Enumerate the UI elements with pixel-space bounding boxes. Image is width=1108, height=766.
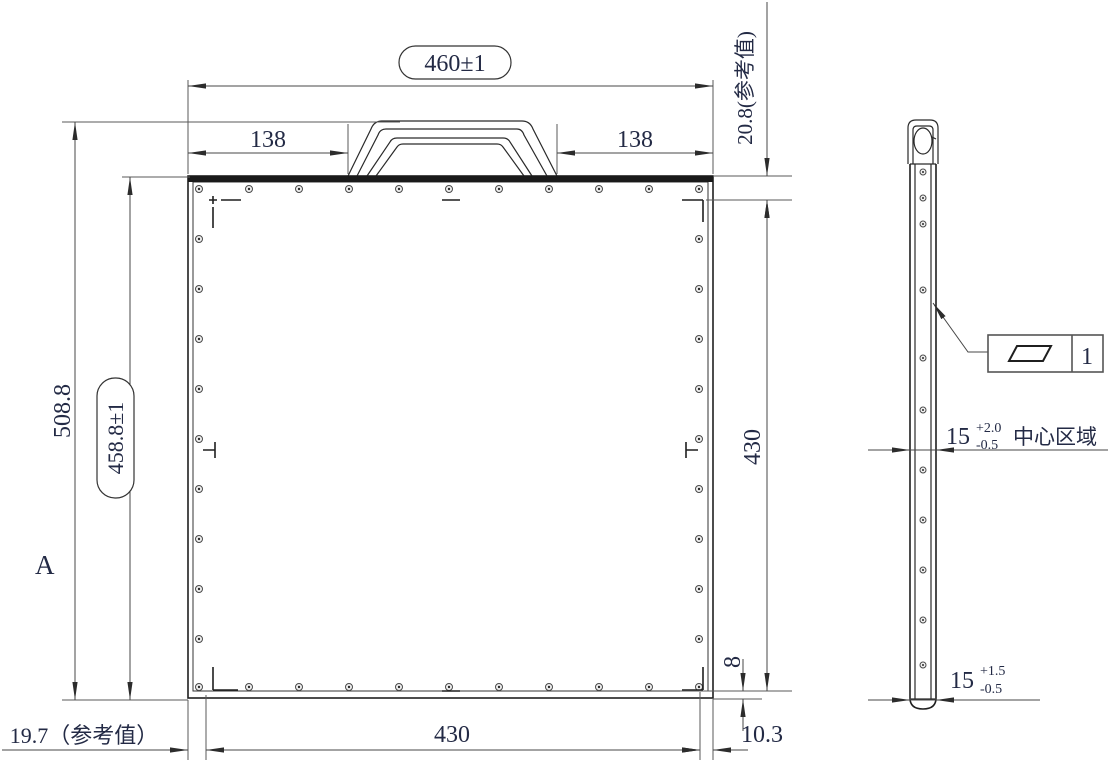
- rivet-hole-center: [698, 686, 700, 688]
- side-view: 1 15 +2.0 -0.5 中心区域 15 +1.5 -0.5: [868, 120, 1108, 709]
- rivet-hole-center: [698, 588, 700, 590]
- rivet-hole-center: [922, 569, 924, 571]
- rivet-hole-center: [198, 338, 200, 340]
- rivet-hole-center: [922, 171, 924, 173]
- mark-bottom-left: [213, 667, 238, 690]
- dim-bottom-edge-label: 8: [720, 656, 746, 668]
- edge-thickness-lower-tol: -0.5: [980, 682, 1002, 697]
- rivet-hole-center: [198, 538, 200, 540]
- rivet-hole-center: [922, 223, 924, 225]
- rivet-hole-center: [198, 638, 200, 640]
- dim-handle-left-label: 138: [250, 127, 286, 153]
- center-thickness-upper-tol: +2.0: [976, 421, 1001, 436]
- center-thickness-nominal: 15: [946, 424, 970, 450]
- rivet-hole-center: [698, 538, 700, 540]
- edge-thickness-upper-tol: +1.5: [980, 664, 1005, 679]
- dim-bottom-right-offset-label: 10.3: [741, 722, 783, 748]
- rivet-hole-center: [922, 664, 924, 666]
- grip-hole-inner: [376, 144, 524, 176]
- rivet-hole-center: [198, 238, 200, 240]
- section-label-a: A: [35, 550, 55, 580]
- rivet-hole-center: [698, 438, 700, 440]
- rivet-hole-center: [198, 288, 200, 290]
- rivet-hole-center: [598, 188, 600, 190]
- panel-top-edge-band: [188, 176, 713, 182]
- side-body-outer: [910, 164, 936, 709]
- rivet-hole-center: [648, 686, 650, 688]
- mark-right-center: [686, 442, 698, 458]
- rivet-hole-center: [922, 469, 924, 471]
- rivet-hole-center: [698, 388, 700, 390]
- rivet-hole-center: [598, 686, 600, 688]
- panel-drawing-svg: 460±1 138 138 20.8(参考值) 508.8 458.8±1 A …: [0, 0, 1108, 766]
- rivet-hole-center: [198, 388, 200, 390]
- center-thickness-zone-note: 中心区域: [1013, 425, 1097, 449]
- panel-outer-frame: [188, 176, 713, 698]
- dim-right-span-label: 430: [740, 429, 766, 465]
- flatness-leader-line: [933, 303, 988, 352]
- rivet-hole-center: [298, 686, 300, 688]
- rivet-hole-center: [698, 638, 700, 640]
- dim-bottom-span-label: 430: [434, 722, 470, 748]
- rivet-hole-center: [922, 409, 924, 411]
- rivet-hole-center: [398, 686, 400, 688]
- rivet-hole-center: [548, 686, 550, 688]
- rivet-hole-center: [922, 197, 924, 199]
- side-oval-slot: [914, 128, 932, 154]
- dim-frame-height-label: 458.8±1: [103, 402, 128, 475]
- panel-inner-frame: [193, 182, 708, 691]
- rivet-hole-center: [298, 188, 300, 190]
- rivet-hole-center: [198, 686, 200, 688]
- rivet-hole-center: [648, 188, 650, 190]
- rivet-holes-front: [196, 186, 703, 691]
- mark-top-right: [682, 200, 703, 222]
- rivet-holes-side: [920, 169, 926, 668]
- mark-left-center: [203, 442, 215, 458]
- rivet-hole-center: [348, 188, 350, 190]
- rivet-hole-center: [922, 619, 924, 621]
- rivet-hole-center: [198, 488, 200, 490]
- rivet-hole-center: [922, 289, 924, 291]
- handle-outline: [348, 121, 557, 176]
- rivet-hole-center: [698, 488, 700, 490]
- rivet-hole-center: [448, 686, 450, 688]
- rivet-hole-center: [498, 686, 500, 688]
- flatness-tolerance-label: 1: [1081, 344, 1093, 370]
- rivet-hole-center: [548, 188, 550, 190]
- center-thickness-lower-tol: -0.5: [976, 438, 998, 453]
- rivet-hole-center: [348, 686, 350, 688]
- rivet-hole-center: [698, 288, 700, 290]
- dim-top-edge-ref-label: 20.8(参考值): [733, 31, 757, 145]
- dim-bottom-left-ref-label: 19.7（参考值）: [10, 723, 159, 748]
- rivet-hole-center: [698, 338, 700, 340]
- rivet-hole-center: [198, 188, 200, 190]
- rivet-hole-center: [448, 188, 450, 190]
- dim-overall-width-label: 460±1: [424, 51, 485, 77]
- rivet-hole-center: [922, 519, 924, 521]
- rivet-hole-center: [698, 238, 700, 240]
- rivet-hole-center: [922, 357, 924, 359]
- rivet-hole-center: [248, 686, 250, 688]
- dim-handle-right-label: 138: [617, 127, 653, 153]
- front-view: 460±1 138 138 20.8(参考值) 508.8 458.8±1 A …: [2, 2, 792, 760]
- rivet-hole-center: [498, 188, 500, 190]
- registration-marks: [203, 196, 703, 691]
- dim-overall-height-label: 508.8: [50, 384, 76, 438]
- engineering-drawing-canvas: 460±1 138 138 20.8(参考值) 508.8 458.8±1 A …: [0, 0, 1108, 766]
- mark-top-left-cross: [209, 196, 241, 228]
- edge-thickness-nominal: 15: [950, 668, 974, 694]
- rivet-hole-center: [248, 188, 250, 190]
- rivet-hole-center: [698, 188, 700, 190]
- rivet-hole-center: [198, 588, 200, 590]
- rivet-hole-center: [398, 188, 400, 190]
- rivet-hole-center: [198, 438, 200, 440]
